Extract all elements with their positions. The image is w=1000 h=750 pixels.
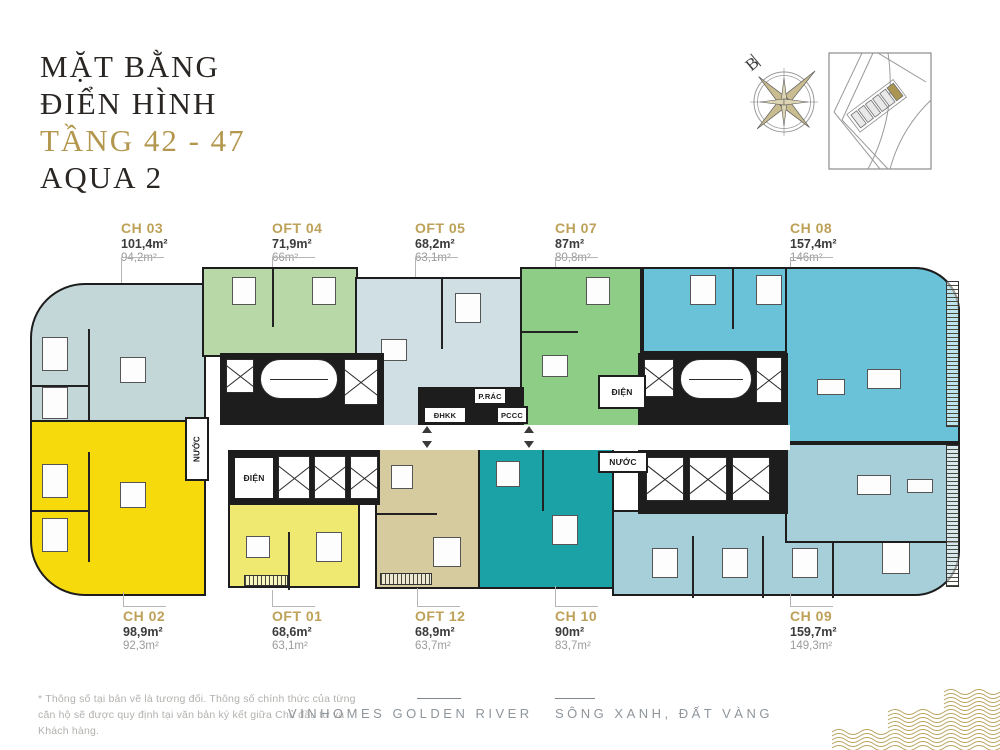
unit-area-ch03 (30, 283, 206, 423)
balcony-hatch (380, 573, 432, 585)
unit-code: CH 08 (790, 220, 910, 236)
unit-area-ch10 (478, 443, 614, 589)
elevator-shaft (278, 456, 310, 499)
unit-area-net: 83,7m² (555, 640, 675, 652)
unit-area-gross: 71,9m² (272, 237, 392, 251)
elevator-shaft (646, 457, 684, 501)
balcony-hatch (946, 281, 959, 427)
unit-area-ch02 (30, 420, 206, 596)
room-fire: PCCC (496, 406, 528, 424)
unit-label-ch09: CH 09 159,7m² 149,3m² (790, 608, 910, 652)
floor-plan: ĐHKK P.RÁC PCCC ĐIỆN NƯỚC NƯỚC ĐIỆN (30, 265, 965, 600)
unit-label-ch10: CH 10 90m² 83,7m² (555, 608, 675, 652)
room-air-handling: ĐHKK (423, 406, 467, 424)
leader-line (123, 592, 166, 607)
compass-icon: B (742, 50, 822, 142)
unit-area-gross: 101,4m² (121, 237, 241, 251)
balcony-hatch (946, 445, 959, 587)
unit-label-ch02: CH 02 98,9m² 92,3m² (123, 608, 243, 652)
room-label: NƯỚC (609, 457, 636, 467)
room-label: PCCC (501, 411, 523, 420)
unit-code: OFT 05 (415, 220, 535, 236)
title-line-1: MẶT BẰNG (40, 48, 246, 85)
room-label: ĐHKK (434, 411, 456, 420)
footer-divider (555, 698, 595, 699)
room-label: P.RÁC (478, 392, 501, 401)
room-trash: P.RÁC (473, 387, 507, 405)
title-line-2: ĐIỂN HÌNH (40, 85, 246, 122)
unit-area-gross: 90m² (555, 625, 675, 639)
staircase (680, 359, 752, 399)
unit-code: OFT 04 (272, 220, 392, 236)
room-label: NƯỚC (193, 436, 202, 462)
unit-area-gross: 159,7m² (790, 625, 910, 639)
unit-code: OFT 12 (415, 608, 535, 624)
unit-code: CH 03 (121, 220, 241, 236)
staircase (260, 359, 338, 399)
wave-decoration (832, 688, 1000, 750)
unit-label-oft01: OFT 01 68,6m² 63,1m² (272, 608, 392, 652)
leader-line (555, 586, 598, 607)
unit-area-ch09-living (785, 443, 960, 543)
elevator-shaft (314, 456, 346, 499)
unit-code: OFT 01 (272, 608, 392, 624)
unit-area-gross: 157,4m² (790, 237, 910, 251)
unit-area-gross: 68,6m² (272, 625, 392, 639)
title-building: AQUA 2 (40, 159, 246, 196)
unit-area-ch08-living (785, 267, 960, 443)
leader-line (790, 592, 833, 607)
footer-slogan: SÔNG XANH, ĐẤT VÀNG (555, 706, 773, 721)
unit-area-gross: 68,2m² (415, 237, 535, 251)
room-water-left: NƯỚC (185, 417, 209, 481)
unit-area-net: 63,1m² (272, 640, 392, 652)
unit-area-net: 92,3m² (123, 640, 243, 652)
room-electrical-left: ĐIỆN (233, 456, 275, 500)
unit-area-gross: 87m² (555, 237, 675, 251)
balcony-hatch (244, 575, 288, 586)
elevator-shaft (689, 457, 727, 501)
central-corridor (190, 425, 790, 450)
leader-line (272, 590, 315, 607)
unit-label-oft12: OFT 12 68,9m² 63,7m² (415, 608, 535, 652)
title-floors: TẦNG 42 - 47 (40, 122, 246, 159)
room-electrical-right: ĐIỆN (598, 375, 646, 409)
corridor-arrow-icon (422, 426, 432, 448)
unit-area-net: 63,7m² (415, 640, 535, 652)
footer-divider (417, 698, 461, 699)
unit-area-gross: 98,9m² (123, 625, 243, 639)
unit-code: CH 02 (123, 608, 243, 624)
unit-area-net: 149,3m² (790, 640, 910, 652)
unit-area-oft04 (202, 267, 358, 357)
room-water-right: NƯỚC (598, 451, 648, 473)
page-title: MẶT BẰNG ĐIỂN HÌNH TẦNG 42 - 47 AQUA 2 (40, 48, 246, 196)
leader-line (417, 588, 460, 607)
unit-area-gross: 68,9m² (415, 625, 535, 639)
unit-code: CH 10 (555, 608, 675, 624)
unit-code: CH 07 (555, 220, 675, 236)
corridor-arrow-icon (524, 426, 534, 448)
unit-area-oft12 (375, 443, 485, 589)
room-label: ĐIỆN (243, 473, 264, 483)
unit-code: CH 09 (790, 608, 910, 624)
footer-brand: VINHOMES GOLDEN RIVER (288, 706, 533, 721)
site-map-inset (828, 52, 932, 170)
elevator-shaft (732, 457, 770, 501)
room-label: ĐIỆN (611, 387, 632, 397)
elevator-shaft (756, 357, 782, 403)
elevator-shaft (644, 359, 674, 397)
elevator-shaft (344, 359, 378, 405)
elevator-shaft (226, 359, 254, 393)
floorplan-page: MẶT BẰNG ĐIỂN HÌNH TẦNG 42 - 47 AQUA 2 B (0, 0, 1000, 750)
elevator-shaft (350, 456, 378, 499)
